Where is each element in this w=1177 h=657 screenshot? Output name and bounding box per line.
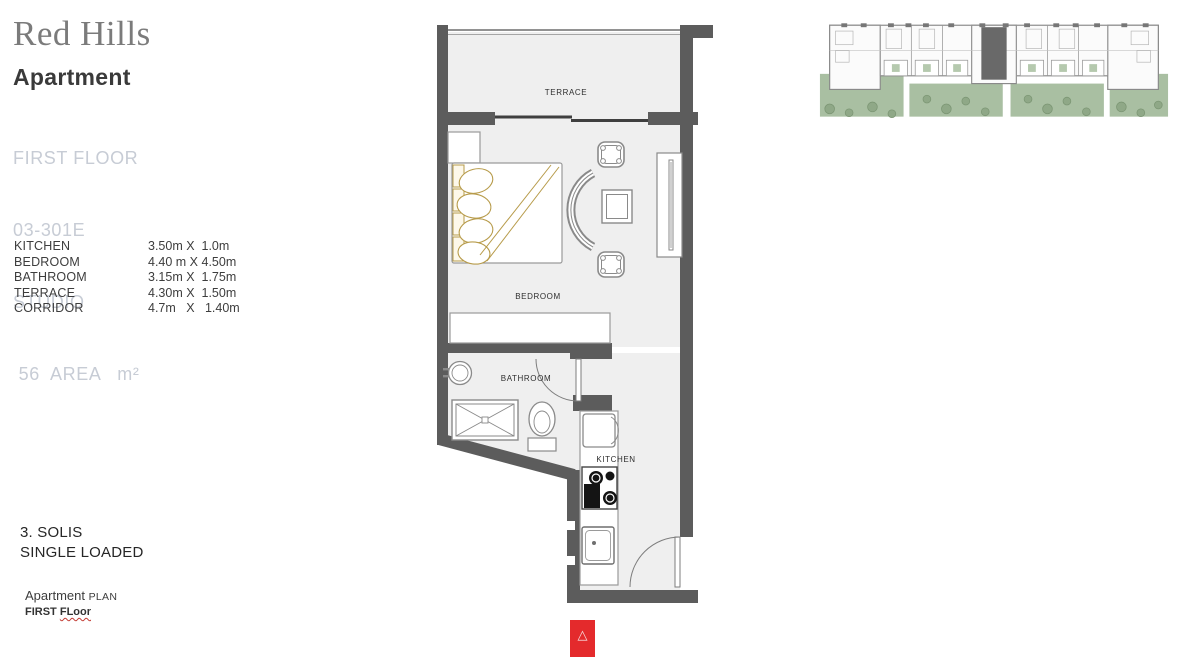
brand-logo: Red Hills xyxy=(13,14,151,54)
terrace-label: TERRACE xyxy=(545,88,587,97)
triangle-icon: △ xyxy=(578,628,588,641)
dresser xyxy=(450,313,610,343)
building-key-plan xyxy=(818,18,1170,120)
room-name: CORRIDOR xyxy=(14,301,148,317)
wall-bathroom-top xyxy=(448,343,570,353)
unit-area: 56 AREA m² xyxy=(13,362,139,386)
unit-floor: FIRST FLOOR xyxy=(13,146,139,170)
dimension-row: CORRIDOR 4.7m X 1.40m xyxy=(14,301,264,317)
floor-caption: FIRST FLoor xyxy=(25,606,91,618)
fridge xyxy=(583,414,618,447)
wall-left xyxy=(437,25,448,445)
room-name: TERRACE xyxy=(14,286,148,302)
plan-caption-small: PLAN xyxy=(89,591,118,603)
plan-sheet: Red Hills Apartment FIRST FLOOR 03-301E … xyxy=(0,0,1177,657)
wardrobe xyxy=(657,153,682,257)
room-name: BATHROOM xyxy=(14,270,148,286)
floor-caption-word: FLoor xyxy=(60,606,91,618)
shower xyxy=(452,400,518,440)
wall-slider-left xyxy=(437,112,495,125)
wall-slider-right xyxy=(648,112,698,125)
room-size: 4.30m X 1.50m xyxy=(148,286,236,302)
room-size: 3.50m X 1.0m xyxy=(148,239,229,255)
kitchen-label: KITCHEN xyxy=(596,455,635,464)
dimensions-table: KITCHEN 3.50m X 1.0m BEDROOM 4.40 m X 4.… xyxy=(14,239,264,317)
project-loading: SINGLE LOADED xyxy=(20,543,143,563)
bathroom-label: BATHROOM xyxy=(501,374,551,383)
wall-right xyxy=(680,25,693,537)
dimension-row: TERRACE 4.30m X 1.50m xyxy=(14,286,264,302)
page-title: Apartment xyxy=(13,64,131,91)
highlighted-unit xyxy=(981,27,1006,80)
wall-corridor-left xyxy=(567,470,580,593)
side-chair-top xyxy=(598,142,624,167)
bedroom-label: BEDROOM xyxy=(515,292,561,301)
coffee-table xyxy=(602,190,632,223)
wall-door-jamb-upper xyxy=(570,343,612,359)
dimension-row: KITCHEN 3.50m X 1.0m xyxy=(14,239,264,255)
location-marker: △ xyxy=(570,620,595,657)
floor-caption-prefix: FIRST xyxy=(25,606,60,618)
nightstand xyxy=(448,132,480,163)
room-size: 3.15m X 1.75m xyxy=(148,270,236,286)
floor-plan: TERRACE BEDROOM BATHROOM KITCHEN xyxy=(430,15,720,617)
project-info: 3. SOLIS SINGLE LOADED xyxy=(20,523,143,563)
side-chair-bottom xyxy=(598,252,624,277)
toilet xyxy=(528,402,556,451)
stove xyxy=(582,467,617,509)
room-size: 4.7m X 1.40m xyxy=(148,301,240,317)
project-name: 3. SOLIS xyxy=(20,523,143,543)
wall-notch xyxy=(567,521,575,530)
terrace-floor xyxy=(448,32,680,122)
kitchen-sink xyxy=(582,527,614,564)
bed xyxy=(452,163,562,266)
wall-bottom xyxy=(567,590,698,603)
dimension-row: BEDROOM 4.40 m X 4.50m xyxy=(14,255,264,271)
plan-caption: Apartment PLAN xyxy=(25,588,117,603)
room-size: 4.40 m X 4.50m xyxy=(148,255,236,271)
wall-notch xyxy=(567,556,575,565)
room-name: KITCHEN xyxy=(14,239,148,255)
plan-caption-word: Apartment xyxy=(25,588,89,603)
dimension-row: BATHROOM 3.15m X 1.75m xyxy=(14,270,264,286)
room-name: BEDROOM xyxy=(14,255,148,271)
wall-stub-top-right xyxy=(680,25,713,38)
